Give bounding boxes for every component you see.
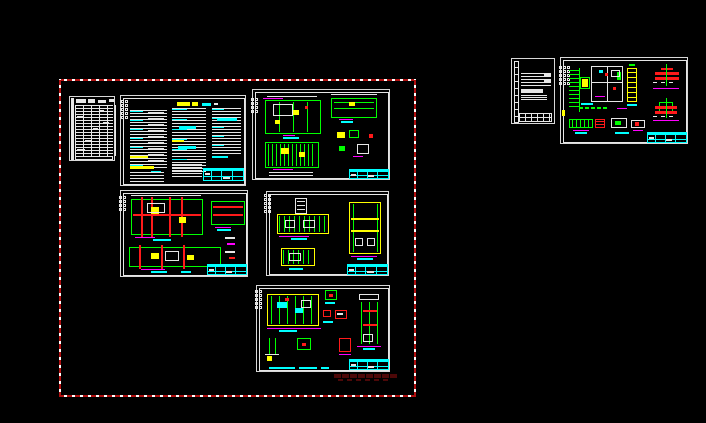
cad-linework: [212, 127, 224, 128]
sheet-tank-sections[interactable]: [266, 191, 389, 276]
cad-linework: [285, 298, 289, 301]
binding-grid-cell: [563, 70, 566, 73]
cad-linework: [130, 147, 143, 148]
cad-linework: [514, 74, 519, 75]
cad-linework: [627, 104, 637, 106]
cad-linework: [358, 374, 365, 378]
cad-linework: [130, 161, 167, 162]
cad-linework: [353, 204, 354, 252]
binding-grid-cell: [251, 106, 254, 109]
title-block-header: [207, 264, 247, 267]
cad-linework: [183, 245, 185, 269]
cad-linework: [213, 206, 243, 208]
cad-linework: [347, 379, 352, 381]
binding-grid-cell: [259, 298, 262, 301]
cad-linework: [172, 144, 206, 145]
cad-linework: [130, 172, 164, 173]
binding-grid-cell: [119, 204, 122, 207]
drawing-canvas[interactable]: [0, 0, 706, 423]
cad-linework: [172, 171, 206, 172]
cad-linework: [279, 330, 297, 332]
cad-linework: [148, 112, 164, 113]
cad-linework: [514, 109, 519, 110]
cad-linework: [342, 374, 349, 378]
cad-linework: [130, 149, 167, 150]
cad-linework: [334, 108, 374, 109]
cad-linework: [130, 138, 143, 139]
cad-linework: [130, 156, 148, 158]
cad-linework: [130, 158, 167, 159]
cad-linework: [148, 130, 164, 131]
cad-linework: [514, 67, 519, 68]
binding-grid-cell: [259, 302, 262, 305]
cad-linework: [141, 269, 165, 270]
cad-linework: [628, 72, 636, 73]
cad-linework: [311, 296, 312, 324]
binding-grid-cell: [255, 290, 258, 293]
cad-linework: [341, 121, 353, 123]
cad-linework: [212, 136, 224, 137]
cad-linework: [276, 144, 277, 166]
cad-linework: [339, 338, 351, 352]
cad-linework: [153, 239, 171, 241]
cad-linework: [130, 134, 167, 135]
title-block-text: [223, 177, 230, 179]
title-block-text: [368, 175, 374, 177]
cad-linework: [115, 105, 116, 156]
cad-linework: [321, 367, 329, 369]
cad-linework: [172, 156, 206, 157]
cad-linework: [172, 168, 206, 169]
cad-linework: [605, 73, 608, 76]
cad-linework: [653, 120, 679, 121]
cad-linework: [521, 97, 547, 98]
cad-linework: [325, 302, 335, 304]
cad-linework: [666, 98, 667, 118]
cad-linework: [88, 99, 95, 103]
cad-linework: [572, 119, 573, 128]
cad-linework: [319, 216, 320, 232]
binding-grid-cell: [559, 74, 562, 77]
cad-linework: [130, 143, 167, 144]
binding-grid-cell: [121, 100, 124, 103]
cad-linework: [582, 79, 588, 87]
title-block-header: [647, 132, 687, 135]
cad-linework: [289, 253, 301, 261]
cad-linework: [187, 255, 194, 260]
binding-grid-cell: [255, 102, 258, 105]
cad-linework: [628, 82, 636, 83]
cad-linework: [229, 257, 235, 259]
cad-linework: [301, 300, 311, 308]
cad-linework: [217, 229, 231, 231]
title-block-header: [349, 169, 389, 172]
cad-linework: [225, 237, 235, 239]
cad-linework: [77, 116, 83, 118]
cad-linework: [521, 99, 547, 100]
cad-linework: [569, 102, 579, 103]
cad-linework: [172, 109, 187, 110]
binding-grid-cell: [264, 210, 267, 213]
binding-grid-cell: [563, 74, 566, 77]
binding-grid-cell: [255, 98, 258, 101]
cad-linework: [579, 107, 583, 109]
sheet-cover-sheet-list[interactable]: [511, 58, 555, 124]
cad-linework: [172, 162, 206, 163]
cad-linework: [356, 379, 361, 381]
binding-grid-cell: [119, 208, 122, 211]
cad-linework: [355, 238, 363, 246]
binding-grid-cell: [255, 110, 258, 113]
cad-linework: [303, 250, 304, 264]
cad-linework: [349, 102, 355, 106]
binding-grid-cell: [255, 302, 258, 305]
cad-linework: [603, 107, 607, 109]
cad-linework: [130, 116, 167, 117]
cad-linework: [655, 77, 679, 80]
cad-linework: [374, 374, 381, 378]
binding-grid-cell: [259, 306, 262, 309]
binding-grid-cell: [123, 204, 126, 207]
cad-linework: [172, 123, 206, 124]
binding-grid-cell: [251, 102, 254, 105]
binding-grid-cell: [255, 298, 258, 301]
cad-linework: [544, 73, 551, 76]
cad-linework: [151, 253, 159, 259]
binding-grid-cell: [559, 78, 562, 81]
cad-linework: [172, 165, 206, 166]
cad-linework: [130, 166, 154, 169]
cad-linework: [359, 294, 379, 300]
binding-grid-cell: [123, 200, 126, 203]
cad-linework: [212, 150, 241, 151]
cad-linework: [363, 324, 377, 326]
cad-linework: [324, 216, 325, 232]
binding-grid-cell: [268, 206, 271, 209]
binding-grid-cell: [125, 108, 128, 111]
cad-linework: [514, 88, 519, 89]
cad-linework: [267, 356, 272, 361]
cad-linework: [211, 201, 245, 225]
binding-grid-cell: [567, 66, 570, 69]
sheet-general-notes[interactable]: [120, 95, 246, 186]
cad-linework: [281, 148, 289, 154]
cad-linework: [377, 302, 378, 344]
binding-grid-cell: [268, 210, 271, 213]
cad-linework: [295, 308, 303, 313]
cad-linework: [202, 103, 211, 106]
cad-linework: [339, 146, 345, 151]
cad-linework: [569, 94, 579, 95]
cad-linework: [617, 108, 627, 109]
cad-linework: [130, 140, 167, 141]
cad-linework: [351, 218, 379, 220]
binding-grid-cell: [123, 196, 126, 199]
cad-linework: [99, 105, 100, 156]
cad-linework: [569, 70, 579, 71]
cad-linework: [212, 111, 241, 112]
cad-linework: [130, 129, 143, 130]
cad-linework: [579, 68, 580, 112]
cad-linework: [308, 144, 309, 166]
selection-marquee-left: [59, 79, 61, 397]
cad-linework: [628, 92, 636, 93]
cad-linework: [212, 156, 228, 158]
cad-linework: [283, 135, 295, 136]
cad-linework: [172, 159, 187, 160]
cad-linework: [130, 125, 167, 126]
cad-linework: [305, 106, 308, 109]
cad-linework: [334, 374, 341, 378]
cad-linework: [214, 103, 218, 105]
cad-linework: [267, 328, 321, 329]
title-block-text: [666, 139, 672, 141]
binding-grid-cell: [259, 290, 262, 293]
cad-linework: [130, 181, 164, 182]
cad-linework: [569, 78, 579, 79]
cad-linework: [172, 150, 206, 151]
cad-linework: [580, 119, 581, 128]
sheet-piping-plan[interactable]: [120, 190, 248, 277]
sheet-installation-details[interactable]: [256, 285, 390, 372]
cad-linework: [172, 164, 202, 165]
binding-grid-cell: [121, 112, 124, 115]
cad-linework: [629, 64, 635, 66]
cad-linework: [172, 120, 206, 121]
cad-linework: [562, 110, 565, 116]
cad-linework: [299, 216, 300, 232]
cad-linework: [172, 176, 202, 177]
cad-linework: [130, 122, 167, 123]
cad-linework: [148, 160, 164, 161]
cad-linework: [308, 250, 309, 264]
cad-linework: [357, 144, 369, 154]
cad-linework: [212, 109, 224, 110]
cad-linework: [265, 354, 279, 355]
cad-linework: [141, 197, 143, 237]
title-block-header: [349, 359, 389, 362]
cad-linework: [179, 217, 186, 223]
cad-linework: [653, 82, 657, 83]
binding-grid-cell: [559, 82, 562, 85]
cad-linework: [267, 96, 317, 97]
sheet-pump-detail-sheet[interactable]: [560, 57, 688, 144]
cad-linework: [279, 216, 280, 232]
sheet-equipment-material-table[interactable]: [69, 96, 115, 161]
cad-linework: [273, 104, 293, 116]
binding-grid-cell: [264, 194, 267, 197]
cad-linework: [283, 250, 284, 264]
cad-linework: [148, 142, 164, 143]
binding-grid-cell: [121, 104, 124, 107]
cad-linework: [263, 98, 283, 99]
cad-linework: [299, 152, 305, 157]
cad-linework: [71, 98, 74, 160]
cad-linework: [269, 172, 313, 173]
cad-linework: [148, 124, 164, 125]
cad-linework: [292, 144, 293, 166]
binding-grid-cell: [255, 306, 258, 309]
cad-linework: [544, 79, 551, 82]
cad-linework: [85, 140, 91, 142]
cad-linework: [615, 132, 629, 134]
cad-linework: [628, 77, 636, 78]
cad-linework: [289, 268, 303, 270]
cad-linework: [357, 346, 381, 347]
cad-linework: [338, 379, 343, 381]
cad-linework: [592, 119, 593, 128]
cad-linework: [297, 209, 305, 210]
cad-linework: [521, 82, 551, 83]
cad-linework: [661, 116, 665, 117]
cad-linework: [268, 144, 269, 166]
cad-linework: [569, 82, 579, 83]
cad-linework: [98, 100, 106, 103]
cad-linework: [172, 119, 187, 120]
binding-grid-cell: [251, 110, 254, 113]
cad-linework: [666, 64, 667, 86]
binding-grid-cell: [563, 78, 566, 81]
cad-linework: [569, 106, 579, 107]
cad-linework: [217, 118, 237, 121]
cad-linework: [299, 367, 317, 369]
cad-linework: [283, 137, 299, 139]
sheet-pump-house-plan[interactable]: [252, 89, 390, 180]
cad-linework: [172, 114, 206, 115]
binding-grid-cell: [125, 116, 128, 119]
title-block-text: [351, 174, 356, 176]
cad-linework: [369, 134, 373, 138]
cad-linework: [653, 116, 657, 117]
cad-linework: [269, 367, 295, 369]
cad-linework: [591, 107, 595, 109]
cad-linework: [109, 99, 114, 102]
cad-linework: [596, 121, 604, 122]
binding-grid-cell: [255, 106, 258, 109]
cad-linework: [607, 66, 608, 102]
cad-linework: [227, 243, 235, 245]
cad-linework: [271, 296, 272, 324]
cad-linework: [172, 167, 202, 168]
cad-linework: [133, 214, 201, 216]
cad-linework: [575, 132, 587, 134]
cad-linework: [312, 144, 313, 166]
binding-grid-cell: [259, 294, 262, 297]
cad-linework: [576, 119, 577, 128]
cad-linework: [91, 105, 92, 156]
cad-linework: [597, 107, 601, 109]
cad-linework: [661, 68, 673, 70]
cad-linework: [131, 195, 201, 196]
cad-linework: [569, 98, 579, 99]
binding-grid-cell: [123, 208, 126, 211]
cad-linework: [172, 140, 184, 142]
cad-linework: [279, 236, 309, 237]
binding-grid-cell: [264, 198, 267, 201]
binding-grid-cell: [251, 98, 254, 101]
cad-linework: [357, 258, 373, 260]
cad-linework: [365, 379, 370, 381]
cad-linework: [366, 374, 373, 378]
cad-linework: [514, 95, 519, 96]
binding-grid-cell: [125, 112, 128, 115]
cad-linework: [285, 220, 295, 228]
cad-linework: [628, 97, 636, 98]
cad-linework: [172, 117, 206, 118]
cad-linework: [212, 147, 241, 148]
cad-linework: [377, 204, 378, 252]
cad-linework: [569, 90, 579, 91]
cad-linework: [653, 88, 679, 89]
cad-linework: [139, 245, 141, 269]
cad-linework: [296, 144, 297, 166]
cad-linework: [148, 154, 164, 155]
binding-grid-cell: [255, 294, 258, 297]
binding-grid-cell: [268, 202, 271, 205]
cad-linework: [172, 149, 187, 150]
cad-linework: [390, 374, 397, 378]
cad-linework: [99, 110, 104, 112]
cad-linework: [172, 173, 202, 174]
cad-linework: [275, 338, 276, 354]
cad-linework: [165, 251, 179, 261]
cad-linework: [169, 197, 171, 237]
binding-grid-cell: [559, 70, 562, 73]
cad-linework: [569, 74, 579, 75]
cad-linework: [76, 99, 86, 103]
binding-grid-cell: [121, 116, 124, 119]
binding-grid-cell: [119, 196, 122, 199]
cad-linework: [172, 135, 206, 136]
cad-linework: [172, 111, 206, 112]
cad-linework: [212, 114, 241, 115]
cad-linework: [353, 156, 363, 157]
cad-linework: [596, 124, 604, 125]
cad-linework: [363, 310, 377, 312]
cad-linework: [269, 338, 270, 354]
cad-linework: [212, 141, 241, 142]
binding-grid-cell: [559, 66, 562, 69]
cad-linework: [151, 271, 167, 273]
cad-linework: [383, 379, 388, 381]
cad-linework: [337, 132, 345, 138]
cad-linework: [172, 170, 202, 171]
cad-linework: [130, 152, 167, 153]
cad-linework: [77, 149, 85, 151]
title-block-text: [351, 364, 356, 366]
cad-linework: [661, 82, 665, 83]
cad-linework: [628, 87, 636, 88]
title-block-text: [209, 269, 214, 271]
cad-linework: [635, 122, 639, 126]
cad-linework: [147, 203, 165, 213]
cad-linework: [75, 105, 76, 156]
cad-linework: [177, 102, 190, 106]
cad-linework: [302, 343, 306, 346]
binding-grid-cell: [125, 104, 128, 107]
cad-linework: [293, 102, 294, 132]
cad-linework: [337, 313, 343, 315]
cad-linework: [514, 81, 519, 82]
cad-linework: [212, 138, 241, 139]
cad-linework: [269, 175, 313, 176]
cad-linework: [584, 119, 585, 128]
cad-linework: [363, 348, 375, 350]
cad-linework: [374, 379, 379, 381]
cad-linework: [181, 271, 191, 273]
cad-linework: [130, 120, 143, 121]
cad-linework: [351, 230, 379, 232]
